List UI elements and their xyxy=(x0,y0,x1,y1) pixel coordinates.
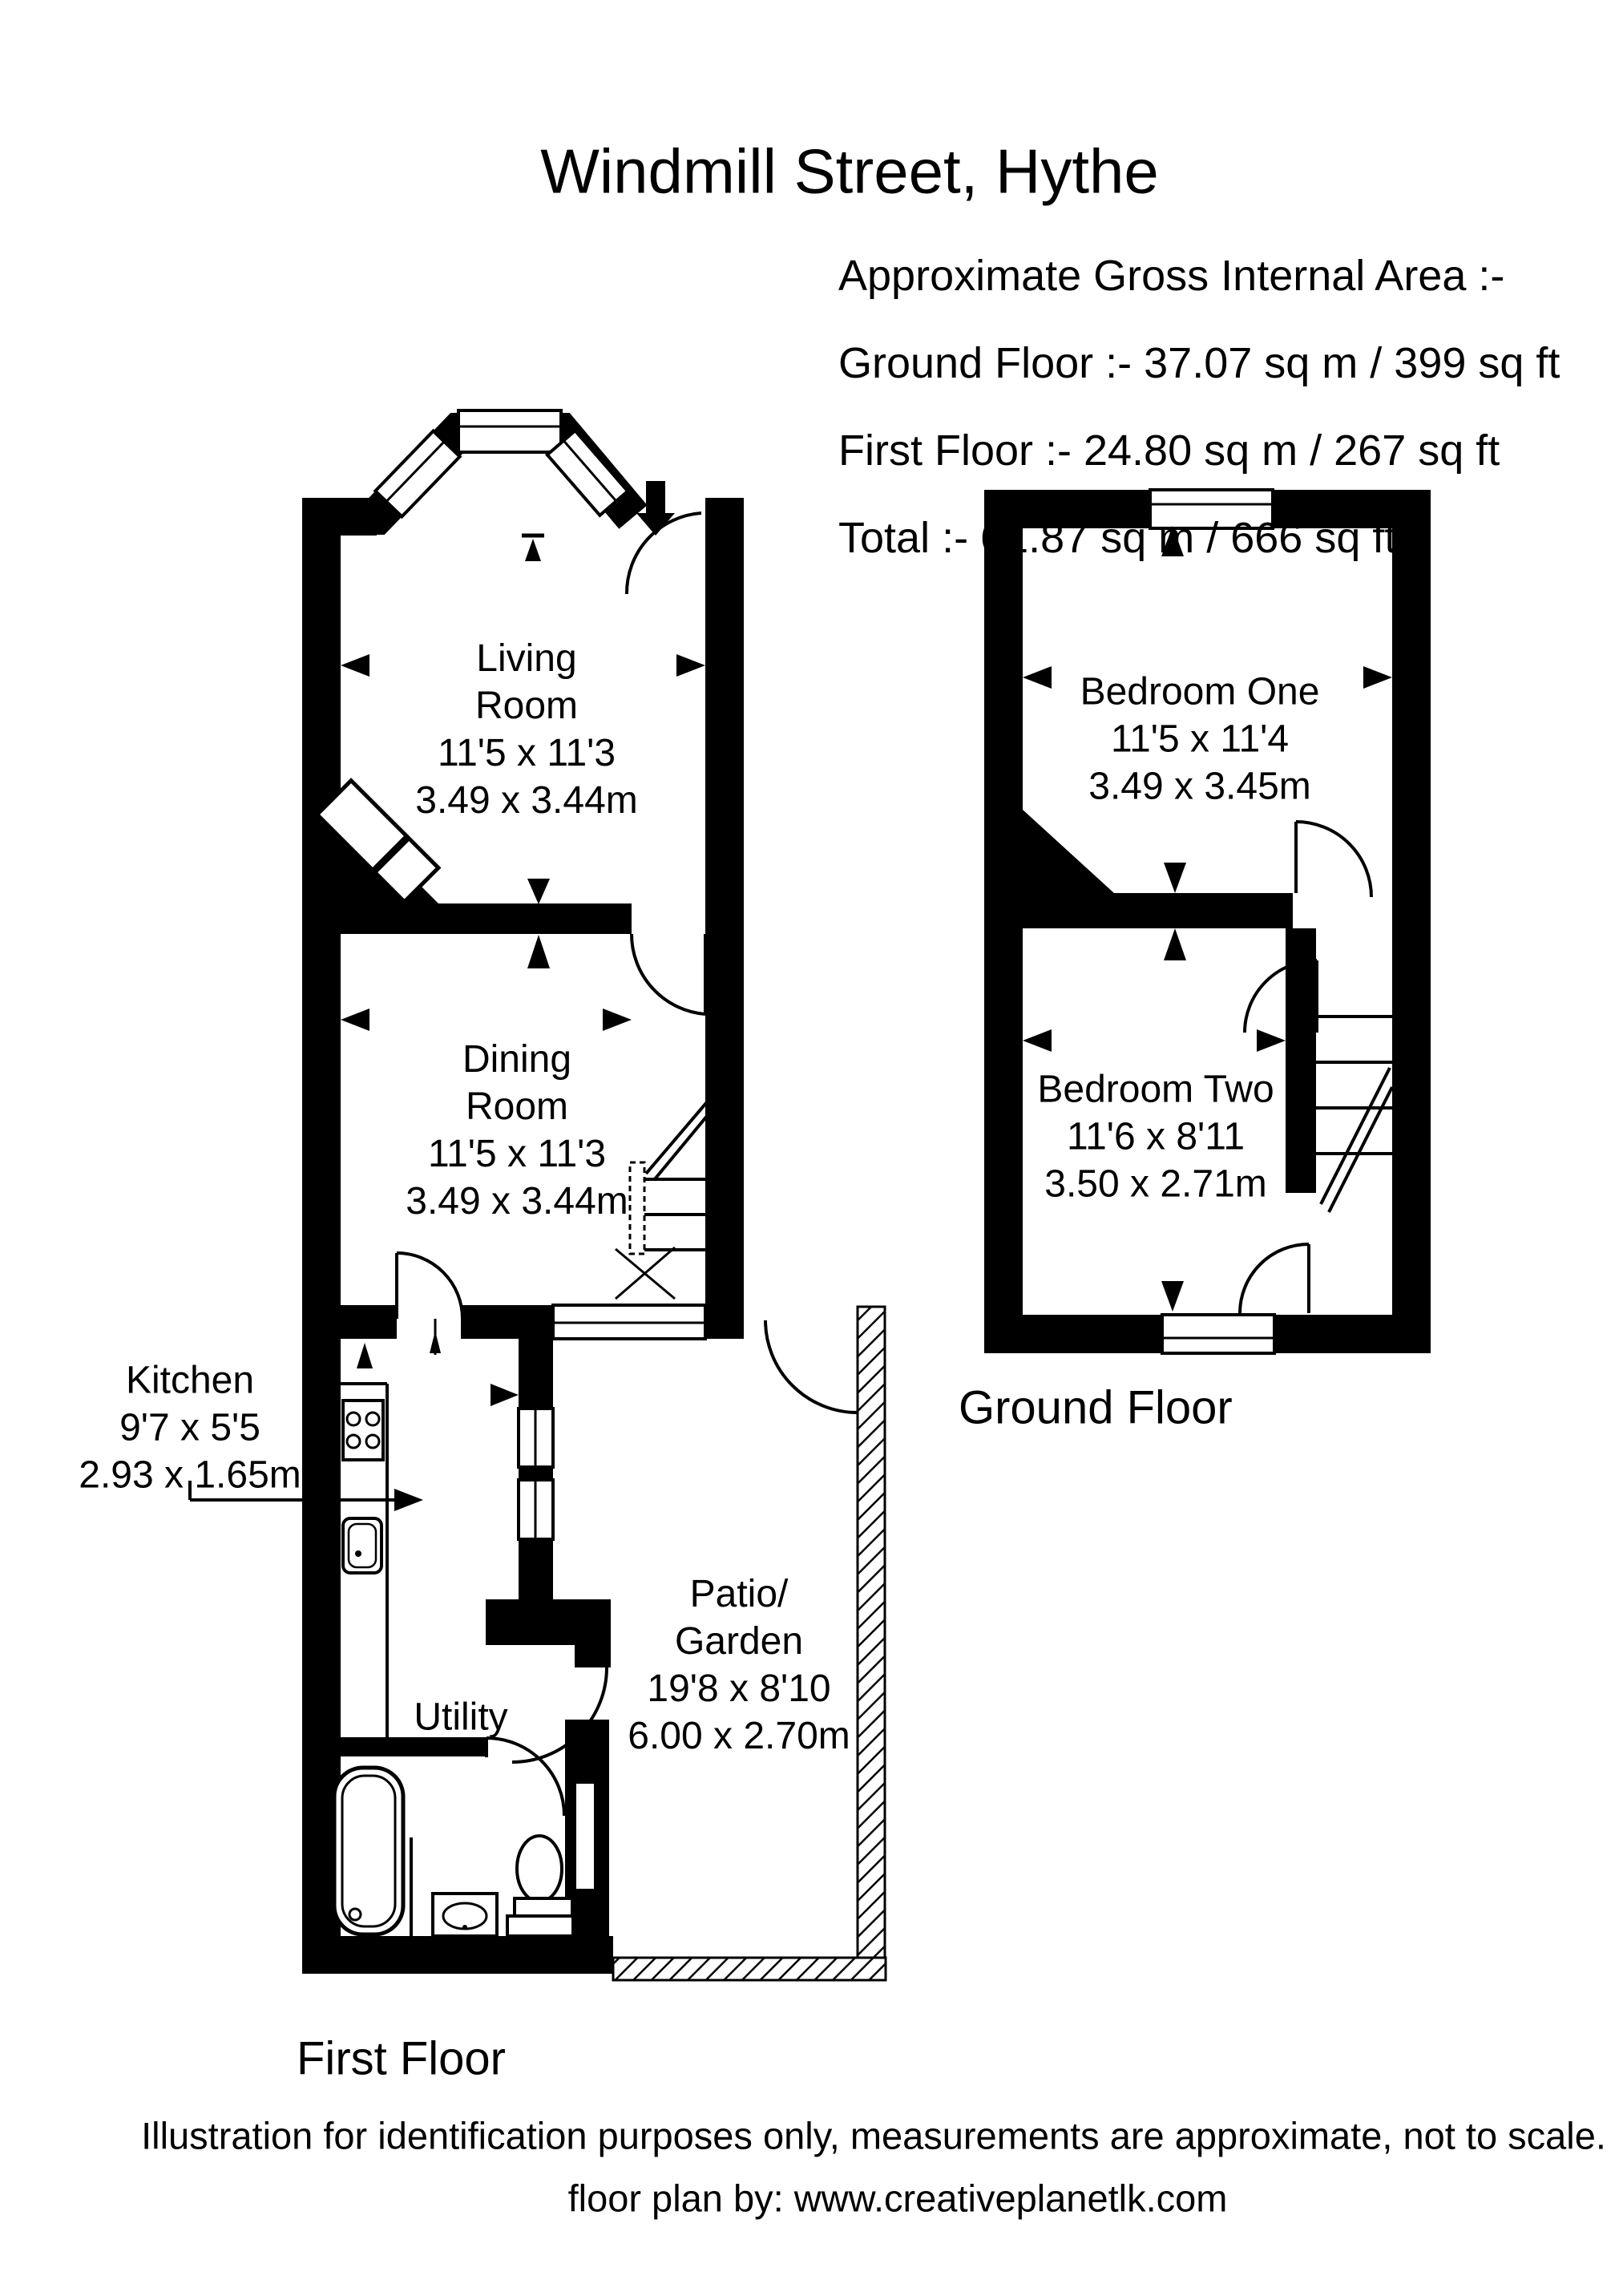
patio-garden-label: Patio/ Garden 19'8 x 8'10 6.00 x 2.70m xyxy=(628,1570,850,1760)
disclaimer-text: Illustration for identification purposes… xyxy=(141,2114,1606,2158)
kitchen-sink xyxy=(343,1518,382,1573)
area-first-floor: First Floor :- 24.80 sq m / 267 sq ft xyxy=(838,407,1560,495)
staircase-ground-floor xyxy=(1316,1017,1392,1212)
bathroom-door xyxy=(486,1738,564,1816)
ground-floor-walls xyxy=(984,490,1431,1353)
bedroom-one-door xyxy=(1296,822,1371,897)
kitchen-label: Kitchen 9'7 x 5'5 2.93 x 1.65m xyxy=(79,1357,301,1499)
dining-room-label: Dining Room 11'5 x 11'3 3.49 x 3.44m xyxy=(406,1036,628,1225)
area-heading: Approximate Gross Internal Area :- xyxy=(838,232,1560,320)
bathtub xyxy=(334,1768,403,1934)
bay-windows xyxy=(375,410,628,516)
area-summary: Approximate Gross Internal Area :- Groun… xyxy=(838,232,1560,582)
dining-kitchen-door xyxy=(397,1253,462,1355)
page-title: Windmill Street, Hythe xyxy=(540,135,1159,208)
living-dining-door xyxy=(632,934,705,1014)
bedroom-two-rear-door xyxy=(1240,1244,1309,1313)
hob xyxy=(343,1401,383,1460)
area-total: Total :- 61.87 sq m / 666 sq ft xyxy=(838,495,1560,582)
credit-text: floor plan by: www.creativeplanetlk.com xyxy=(568,2177,1228,2221)
floor-plan-page: Windmill Street, Hythe Approximate Gross… xyxy=(0,0,1623,2296)
bedroom-one-label: Bedroom One 11'5 x 11'4 3.49 x 3.45m xyxy=(1080,669,1320,810)
bay-pointer-icon xyxy=(522,536,544,561)
bathroom-window xyxy=(575,1782,596,1890)
bedroom-two-label: Bedroom Two 11'6 x 8'11 3.50 x 2.71m xyxy=(1037,1066,1274,1208)
living-room-label: Living Room 11'5 x 11'3 3.49 x 3.44m xyxy=(415,635,638,824)
ground-floor-plan xyxy=(984,490,1431,1353)
bathroom-basin xyxy=(433,1894,497,1936)
toilet xyxy=(507,1836,573,1936)
bedroom-two-window xyxy=(1162,1315,1274,1353)
utility-label: Utility xyxy=(414,1694,507,1741)
area-ground-floor: Ground Floor :- 37.07 sq m / 399 sq ft xyxy=(838,320,1560,407)
ground-floor-label: Ground Floor xyxy=(959,1381,1233,1435)
first-floor-label: First Floor xyxy=(297,2032,506,2086)
dining-rear-window xyxy=(553,1305,705,1339)
